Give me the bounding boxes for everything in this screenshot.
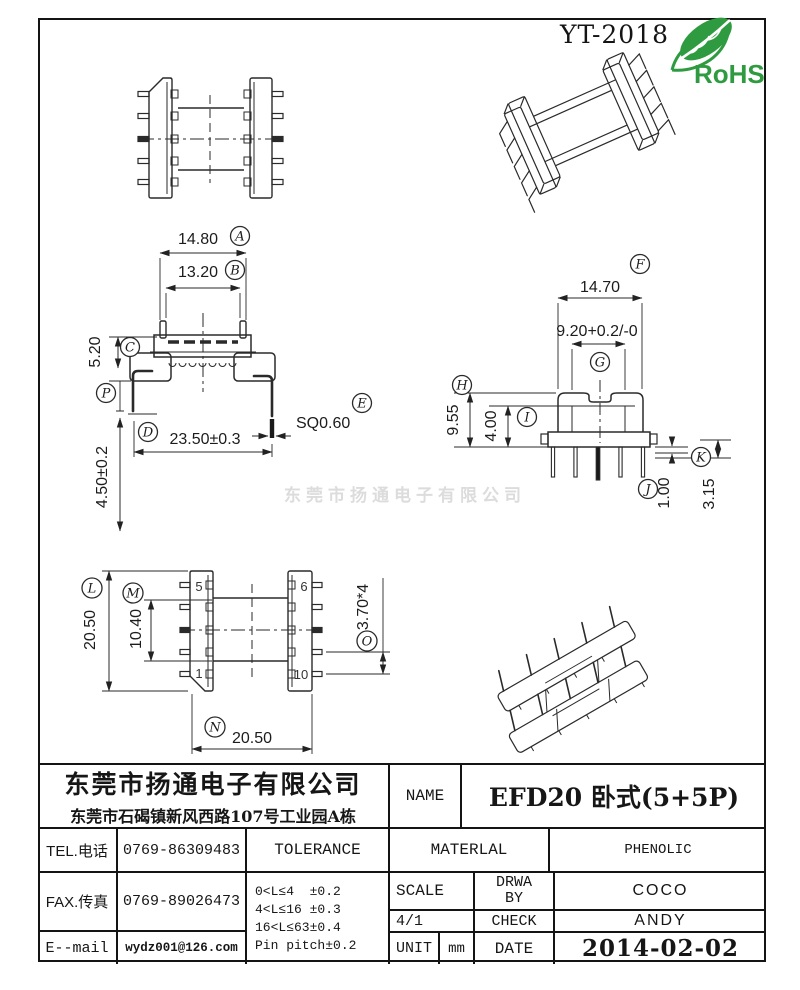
badge-H: H: [453, 376, 472, 395]
badge-B-letter: B: [229, 264, 240, 279]
tolerance-header: TOLERANCE: [247, 829, 390, 873]
view-top-plan: [138, 78, 283, 198]
badge-D-letter: D: [142, 426, 154, 441]
badge-G: G: [591, 353, 610, 372]
unit-label: UNIT: [390, 933, 440, 964]
title-block: 东莞市扬通电子有限公司 东莞市石碣镇新风西路107号工业园A栋 NAME EFD…: [38, 763, 766, 962]
badge-A-letter: A: [234, 230, 244, 245]
badge-C: C: [121, 338, 140, 357]
dim-letter-badges: A B C D E F G H I J K L M N O P: [82, 227, 711, 738]
view-isometric-top: [490, 47, 681, 213]
badge-D: D: [139, 423, 158, 442]
company-cell: 东莞市扬通电子有限公司 东莞市石碣镇新风西路107号工业园A栋: [38, 765, 390, 829]
company-address: 东莞市石碣镇新风西路107号工业园A栋: [70, 803, 356, 827]
dim-L-value: 20.50: [82, 610, 99, 650]
badge-N: N: [205, 717, 225, 737]
badge-M: M: [123, 583, 143, 603]
badge-C-letter: C: [125, 341, 135, 356]
badge-P-letter: P: [101, 387, 111, 402]
dim-K-value: 3.15: [701, 478, 718, 509]
unit-value: mm: [440, 933, 475, 964]
dim-D-value: 23.50±0.3: [169, 431, 240, 448]
dim-I-value: 4.00: [483, 410, 500, 441]
scale-value: 4/1: [390, 911, 475, 933]
part-name-cell: EFD20 卧式(5+5P): [462, 765, 766, 829]
tel-value: 0769-86309483: [118, 829, 247, 873]
dim-M-value: 10.40: [128, 609, 145, 649]
pin-number-top-left: 5: [195, 579, 202, 594]
drawn-by-value: COCO: [555, 873, 766, 911]
dim-F-value: 14.70: [580, 279, 620, 296]
dim-E-value: SQ0.60: [296, 415, 350, 432]
view-side: [541, 380, 657, 480]
badge-H-letter: H: [455, 379, 468, 394]
view-isometric-bottom: [478, 603, 660, 758]
fax-value: 0769-89026473: [118, 873, 247, 932]
badge-L: L: [82, 578, 102, 598]
badge-J: J: [639, 480, 658, 499]
badge-K: K: [692, 448, 711, 467]
tolerance-table: 0<L≤4 ±0.2 4<L≤16 ±0.3 16<L≤63±0.4 Pin p…: [247, 873, 390, 964]
tolerance-row-2: 4<L≤16 ±0.3: [255, 901, 341, 918]
badge-F-letter: F: [634, 258, 645, 273]
view-front: [130, 313, 275, 438]
dim-C-value: 5.20: [87, 336, 104, 367]
badge-P: P: [97, 384, 116, 403]
dim-O-value: 3.70*4: [355, 584, 372, 630]
dim-B-value: 13.20: [178, 264, 218, 281]
badge-N-letter: N: [208, 721, 221, 736]
tel-label: TEL.电话: [38, 829, 118, 873]
dim-G-value: 9.20+0.2/-0: [556, 323, 638, 340]
drawn-by-label: DRWA BY: [475, 873, 555, 911]
dim-P-value: 4.50±0.2: [94, 446, 111, 508]
badge-E: E: [353, 394, 372, 413]
pin-number-bottom-left: 1: [195, 666, 202, 681]
badge-A: A: [231, 227, 250, 246]
front-dimensions: [109, 253, 291, 531]
date-label: DATE: [475, 933, 555, 964]
email-value: wydz001@126.com: [118, 932, 247, 964]
check-label: CHECK: [475, 911, 555, 933]
material-label: MATERLAL: [390, 829, 550, 873]
dim-H-value: 9.55: [445, 404, 462, 435]
tolerance-row-3: 16<L≤63±0.4: [255, 919, 341, 936]
badge-O: O: [357, 631, 377, 651]
name-label-cell: NAME: [390, 765, 462, 829]
views: [102, 47, 731, 758]
check-value: ANDY: [555, 911, 766, 933]
badge-I-letter: I: [523, 411, 530, 426]
dim-J-value: 1.00: [656, 477, 673, 508]
tolerance-row-1: 0<L≤4 ±0.2: [255, 883, 341, 900]
dim-A-value: 14.80: [178, 231, 218, 248]
dim-values: 14.80 13.20 5.20 4.50±0.2 23.50±0.3 SQ0.…: [82, 231, 718, 747]
badge-I: I: [518, 408, 537, 427]
drawing-sheet: YT-2018 RoHS 东莞市扬通电子有限公司: [0, 0, 800, 990]
company-name: 东莞市扬通电子有限公司: [64, 765, 361, 801]
material-value: PHENOLIC: [550, 829, 766, 873]
date-value: 2014-02-02: [555, 933, 766, 964]
email-label: E--mail: [38, 932, 118, 964]
pin-number-top-right: 6: [300, 579, 307, 594]
tolerance-row-4: Pin pitch±0.2: [255, 937, 356, 954]
fax-label: FAX.传真: [38, 873, 118, 932]
badge-B: B: [226, 261, 245, 280]
badge-O-letter: O: [362, 635, 373, 650]
badge-K-letter: K: [695, 451, 707, 466]
badge-F: F: [631, 255, 650, 274]
badge-M-letter: M: [125, 587, 140, 602]
dim-N-value: 20.50: [232, 730, 272, 747]
pin-number-bottom-right: 10: [294, 667, 308, 682]
badge-E-letter: E: [356, 397, 367, 412]
scale-label: SCALE: [390, 873, 475, 911]
badge-L-letter: L: [87, 582, 97, 597]
badge-G-letter: G: [595, 356, 605, 371]
